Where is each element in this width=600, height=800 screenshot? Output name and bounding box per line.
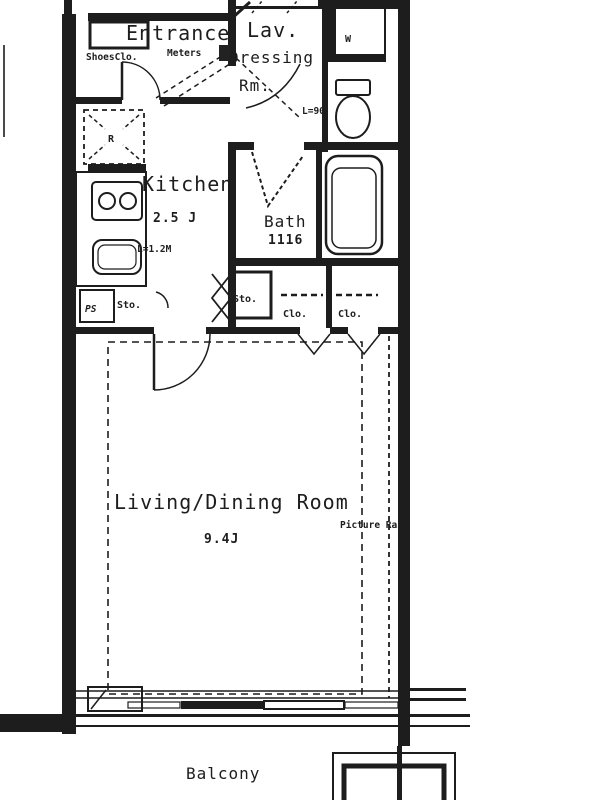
living-dining-size: 9.4J: [204, 532, 239, 547]
lavatory-label: Lav.: [247, 18, 299, 42]
balcony-label: Balcony: [186, 764, 260, 783]
bath-folding-door: [252, 152, 303, 206]
kitchen-size: 2.5 J: [153, 211, 197, 226]
floor-plan: Entrance ShoesClo. Meters Lav. Dressing …: [0, 0, 600, 800]
dressing-label: Dressing: [229, 48, 314, 67]
sink-icon: [93, 240, 141, 274]
bathtub-icon: [326, 156, 382, 254]
stove-icon: [92, 182, 142, 220]
washer-space-box: [335, 8, 385, 56]
closet-bifold-doors: [298, 334, 380, 354]
storage1-door-arc: [156, 292, 168, 308]
pipe-space-label: PS: [85, 304, 97, 315]
meters-label: Meters: [167, 48, 201, 59]
kitchen-counter-length: L=1.2M: [137, 244, 172, 255]
outdoor-unit-box: [333, 753, 455, 800]
living-room-inset-dashed: [108, 342, 362, 694]
living-dining-label: Living/Dining Room: [114, 490, 349, 514]
picture-rail-label: Picture Rail: [340, 520, 409, 531]
toilet-icon: [336, 80, 370, 138]
shoes-closet-label: ShoesClo.: [86, 52, 137, 63]
storage2-label: Sto.: [233, 294, 257, 305]
closet2-label: Clo.: [338, 309, 362, 320]
storage1-label: Sto.: [117, 300, 141, 311]
entrance-label: Entrance: [126, 21, 230, 45]
kitchen-label: Kitchen: [142, 172, 233, 196]
washer-space-label: W: [345, 34, 352, 45]
dressing-rm-label: Rm.: [239, 76, 271, 95]
floor-plan-drawing: Entrance ShoesClo. Meters Lav. Dressing …: [0, 0, 600, 800]
walls: [0, 0, 470, 800]
bath-size: 1116: [268, 233, 303, 248]
closet1-label: Clo.: [283, 309, 307, 320]
refrigerator-label: R: [108, 134, 115, 145]
bath-label: Bath: [264, 212, 307, 231]
lav-counter-label: L=90: [302, 106, 325, 117]
